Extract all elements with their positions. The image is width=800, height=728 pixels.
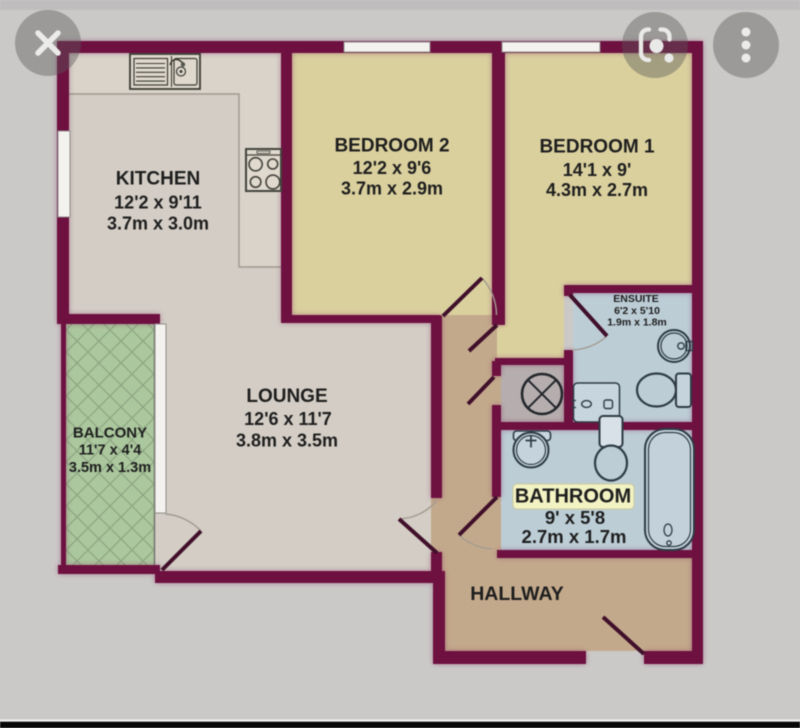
- svg-text:11'7 x 4'4: 11'7 x 4'4: [79, 443, 142, 459]
- svg-text:BEDROOM 2: BEDROOM 2: [334, 136, 449, 157]
- svg-text:3.8m x 3.5m: 3.8m x 3.5m: [236, 431, 338, 451]
- svg-text:3.7m x 3.0m: 3.7m x 3.0m: [107, 214, 209, 234]
- svg-text:3.5m x 1.3m: 3.5m x 1.3m: [69, 460, 151, 476]
- svg-text:2.7m x 1.7m: 2.7m x 1.7m: [522, 526, 627, 547]
- svg-text:14'1 x 9': 14'1 x 9': [563, 160, 632, 180]
- svg-text:12'6 x 11'7: 12'6 x 11'7: [244, 409, 332, 429]
- svg-text:LOUNGE: LOUNGE: [246, 386, 327, 407]
- svg-text:4.3m x 2.7m: 4.3m x 2.7m: [546, 180, 648, 200]
- svg-text:KITCHEN: KITCHEN: [116, 169, 200, 190]
- svg-text:1.9m x 1.8m: 1.9m x 1.8m: [607, 317, 667, 329]
- svg-text:BATHROOM: BATHROOM: [515, 486, 631, 508]
- svg-text:ENSUITE: ENSUITE: [613, 293, 659, 305]
- svg-text:HALLWAY: HALLWAY: [470, 583, 564, 605]
- svg-text:3.7m x 2.9m: 3.7m x 2.9m: [341, 179, 443, 199]
- svg-text:BEDROOM 1: BEDROOM 1: [539, 137, 655, 158]
- svg-text:12'2 x 9'6: 12'2 x 9'6: [353, 158, 432, 178]
- svg-text:BALCONY: BALCONY: [73, 425, 147, 442]
- svg-text:12'2 x 9'11: 12'2 x 9'11: [114, 193, 202, 213]
- svg-text:6'2 x 5'10: 6'2 x 5'10: [614, 305, 660, 317]
- svg-text:9' x 5'8: 9' x 5'8: [545, 507, 605, 528]
